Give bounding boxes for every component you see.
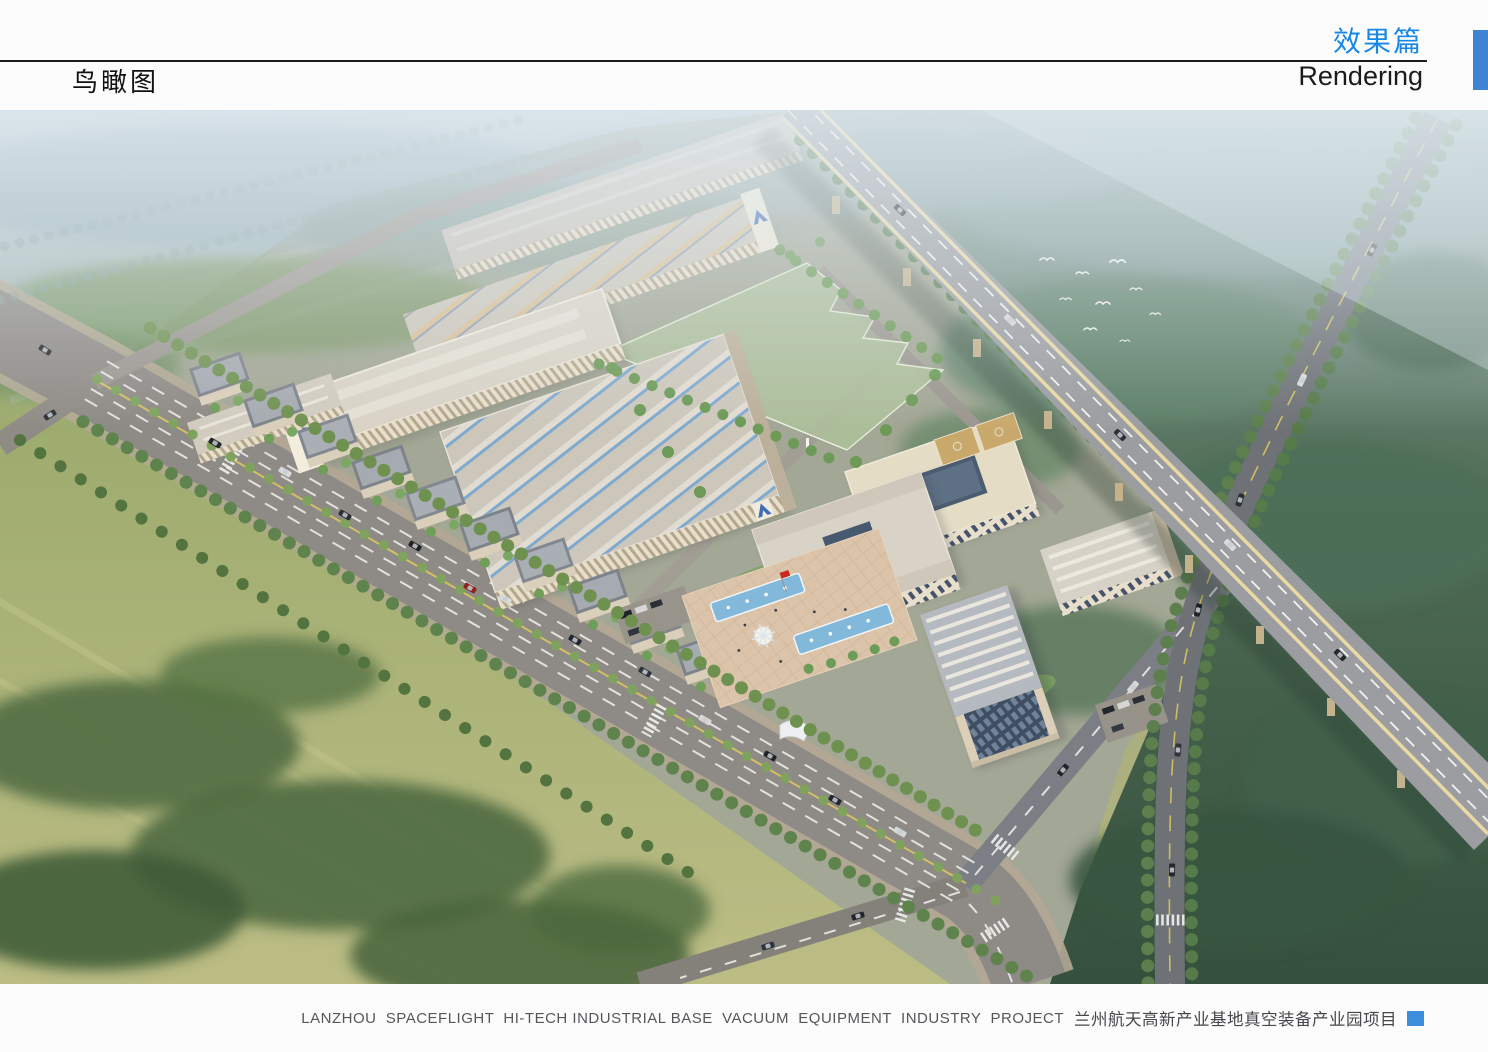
section-tab-marker	[1473, 30, 1488, 90]
header-rule	[0, 60, 1427, 62]
aerial-rendering-image	[0, 110, 1488, 984]
footer-marker	[1407, 1011, 1424, 1026]
presentation-page: 鸟瞰图 效果篇 Rendering	[0, 0, 1488, 1052]
project-name-cn: 兰州航天高新产业基地真空装备产业园项目	[1074, 1006, 1397, 1030]
page-footer: LANZHOU SPACEFLIGHT HI-TECH INDUSTRIAL B…	[0, 984, 1488, 1052]
page-header: 鸟瞰图 效果篇 Rendering	[0, 0, 1488, 110]
project-name-en: LANZHOU SPACEFLIGHT HI-TECH INDUSTRIAL B…	[301, 1010, 1064, 1027]
page-title: 鸟瞰图	[72, 62, 159, 99]
section-title-en: Rendering	[1298, 62, 1423, 90]
section-title-cn: 效果篇	[1333, 26, 1423, 58]
aerial-rendering-figure	[0, 110, 1488, 984]
